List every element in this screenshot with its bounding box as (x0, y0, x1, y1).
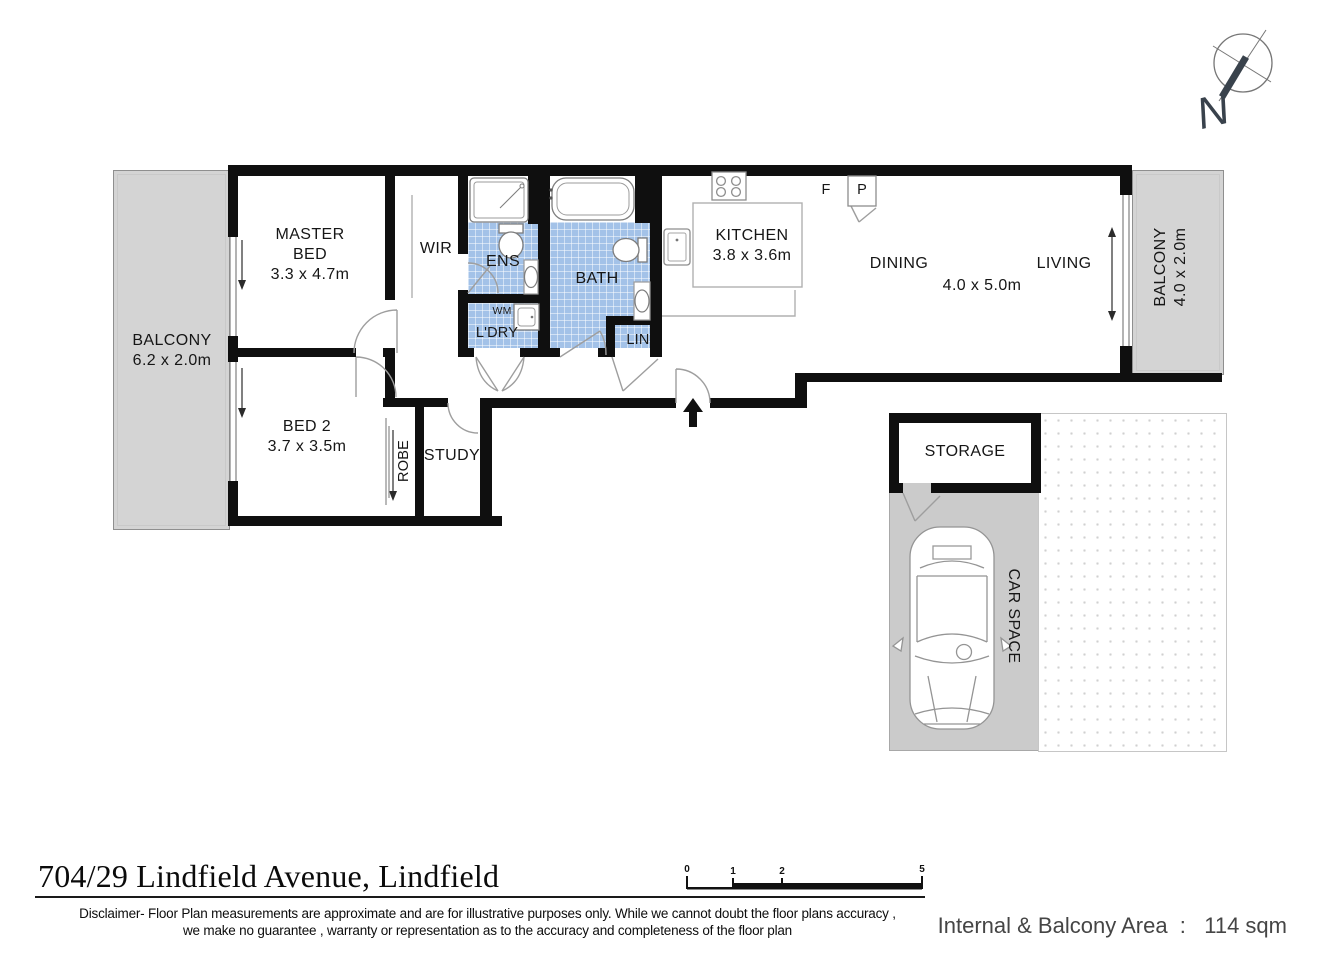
room-dims: 3.7 x 3.5m (268, 437, 347, 457)
washing-machine-label: WM (492, 301, 511, 321)
scale-tick-2: 2 (779, 866, 785, 877)
cooktop-icon (712, 172, 746, 200)
car-space-label: CAR SPACE (1003, 569, 1023, 664)
dining-label: DINING (870, 254, 928, 274)
room-name: BALCONY (132, 331, 211, 351)
floor-plan-graphics (0, 0, 1331, 960)
room-name: BED 2 (268, 417, 347, 437)
balcony-left-label: BALCONY 6.2 x 2.0m (132, 331, 211, 371)
storage-label: STORAGE (925, 442, 1006, 462)
entry-arrow-icon (683, 398, 703, 427)
bath-label: BATH (575, 269, 618, 289)
internal-balcony-area: Internal & Balcony Area : 114 sqm (938, 914, 1287, 938)
master-balcony-arrow (238, 280, 246, 290)
balcony-right-label: BALCONY 4.0 x 2.0m (1151, 227, 1191, 306)
robe-label: ROBE (394, 440, 414, 482)
ensuite-label: ENS (486, 252, 520, 272)
living-dining-dims: 4.0 x 5.0m (943, 276, 1022, 296)
bed2-balcony-arrow (238, 408, 246, 418)
shower-icon (470, 178, 528, 222)
floor-plan-canvas: BALCONY 6.2 x 2.0m MASTER BED 3.3 x 4.7m… (0, 0, 1331, 960)
area-summary: Internal & Balcony Area : 114 sqm Car sp… (938, 866, 1287, 960)
living-label: LIVING (1037, 254, 1092, 274)
room-name: BED (271, 245, 350, 265)
ensuite-basin-icon (524, 260, 538, 294)
scale-tick-1: 1 (730, 866, 736, 877)
storage-door-flap (903, 493, 940, 521)
room-dims: 6.2 x 2.0m (132, 351, 211, 371)
room-dims: 3.8 x 3.6m (713, 246, 792, 266)
disclaimer-line2: we make no guarantee , warranty or repre… (55, 922, 920, 939)
disclaimer: Disclaimer- Floor Plan measurements are … (55, 905, 920, 939)
wir-label: WIR (420, 239, 452, 259)
room-name: BALCONY (1151, 227, 1171, 306)
bed2-label: BED 2 3.7 x 3.5m (268, 417, 347, 457)
pantry-label: P (857, 180, 867, 200)
study-door-arc (448, 403, 478, 433)
kitchen-label: KITCHEN 3.8 x 3.6m (713, 226, 792, 266)
entry-door-arc (676, 369, 710, 403)
linen-door-flap (612, 357, 658, 391)
laundry-label: L'DRY (476, 323, 518, 343)
scale-bar (687, 876, 922, 890)
robe-arrow (389, 491, 397, 501)
room-name: KITCHEN (713, 226, 792, 246)
living-balcony-arrow-up (1108, 227, 1116, 237)
title-underline (35, 896, 925, 898)
linen-label: LIN (626, 330, 649, 350)
walls (228, 165, 1222, 526)
scale-tick-0: 0 (684, 864, 690, 875)
master-bed-label: MASTER BED 3.3 x 4.7m (271, 225, 350, 285)
page-title: 704/29 Lindfield Avenue, Lindfield (38, 858, 499, 895)
laundry-doors (476, 357, 524, 391)
room-dims: 4.0 x 2.0m (1171, 227, 1191, 306)
room-dims: 3.3 x 4.7m (271, 265, 350, 285)
kitchen-sink-icon (664, 229, 690, 265)
car-icon (893, 527, 1011, 729)
scale-tick-5: 5 (919, 864, 925, 875)
fridge-label: F (821, 180, 830, 200)
disclaimer-line1: Disclaimer- Floor Plan measurements are … (55, 905, 920, 922)
study-label: STUDY (424, 446, 480, 466)
bathtub-icon (549, 178, 634, 220)
living-balcony-arrow-down (1108, 311, 1116, 321)
bath-basin-icon (634, 282, 650, 320)
storage-room (889, 413, 1041, 521)
room-name: MASTER (271, 225, 350, 245)
pantry-door-flap (851, 206, 876, 222)
master-door-arc (354, 310, 397, 353)
bath-toilet-icon (613, 238, 647, 262)
